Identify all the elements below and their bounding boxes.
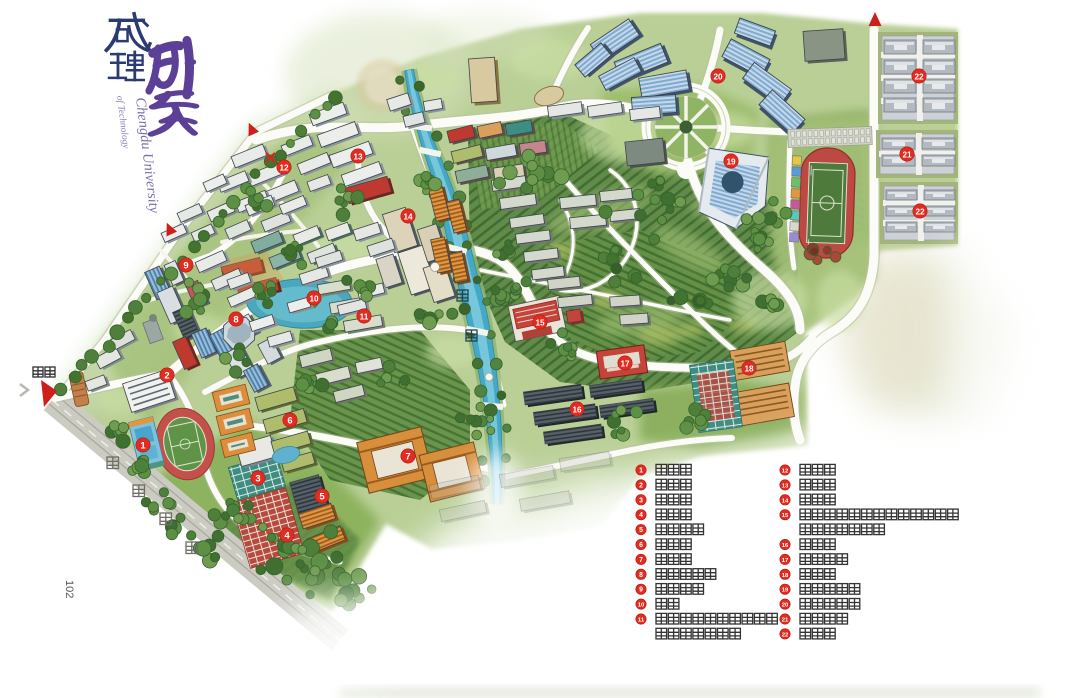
svg-text:11: 11: [638, 617, 645, 623]
svg-text:10: 10: [309, 294, 319, 303]
svg-text:20: 20: [782, 603, 789, 609]
svg-text:19: 19: [726, 157, 736, 166]
svg-text:14: 14: [782, 498, 789, 504]
svg-text:1: 1: [140, 440, 146, 451]
svg-text:7: 7: [405, 451, 410, 462]
svg-text:15: 15: [535, 318, 545, 327]
svg-text:20: 20: [713, 72, 723, 81]
svg-text:13: 13: [353, 152, 363, 161]
svg-text:3: 3: [255, 473, 260, 484]
svg-text:19: 19: [782, 588, 789, 594]
svg-text:8: 8: [233, 314, 238, 325]
svg-text:4: 4: [284, 530, 290, 541]
svg-text:22: 22: [782, 632, 789, 638]
svg-text:10: 10: [638, 603, 645, 609]
svg-text:7: 7: [639, 557, 643, 564]
svg-text:22: 22: [915, 207, 925, 216]
svg-text:12: 12: [782, 468, 789, 474]
svg-text:22: 22: [914, 72, 924, 81]
svg-text:17: 17: [782, 558, 789, 564]
svg-text:4: 4: [639, 512, 643, 519]
svg-text:102: 102: [63, 580, 75, 598]
svg-text:5: 5: [319, 491, 325, 502]
svg-text:2: 2: [164, 370, 169, 381]
svg-text:9: 9: [639, 587, 643, 594]
svg-text:6: 6: [639, 542, 643, 549]
svg-text:16: 16: [782, 543, 789, 549]
svg-text:18: 18: [744, 364, 754, 373]
svg-text:2: 2: [639, 482, 643, 489]
svg-text:18: 18: [782, 573, 789, 579]
svg-text:16: 16: [572, 405, 582, 414]
svg-text:14: 14: [403, 212, 413, 221]
svg-text:11: 11: [360, 312, 369, 321]
svg-text:13: 13: [782, 483, 789, 489]
svg-text:9: 9: [183, 260, 188, 271]
svg-text:12: 12: [279, 163, 289, 172]
svg-text:21: 21: [902, 150, 912, 159]
svg-text:5: 5: [639, 527, 643, 534]
svg-text:6: 6: [287, 415, 292, 426]
svg-text:17: 17: [620, 359, 630, 368]
svg-text:3: 3: [639, 497, 643, 504]
svg-text:15: 15: [782, 513, 789, 519]
svg-text:1: 1: [639, 467, 643, 474]
svg-text:21: 21: [782, 617, 789, 623]
svg-text:8: 8: [639, 572, 643, 579]
